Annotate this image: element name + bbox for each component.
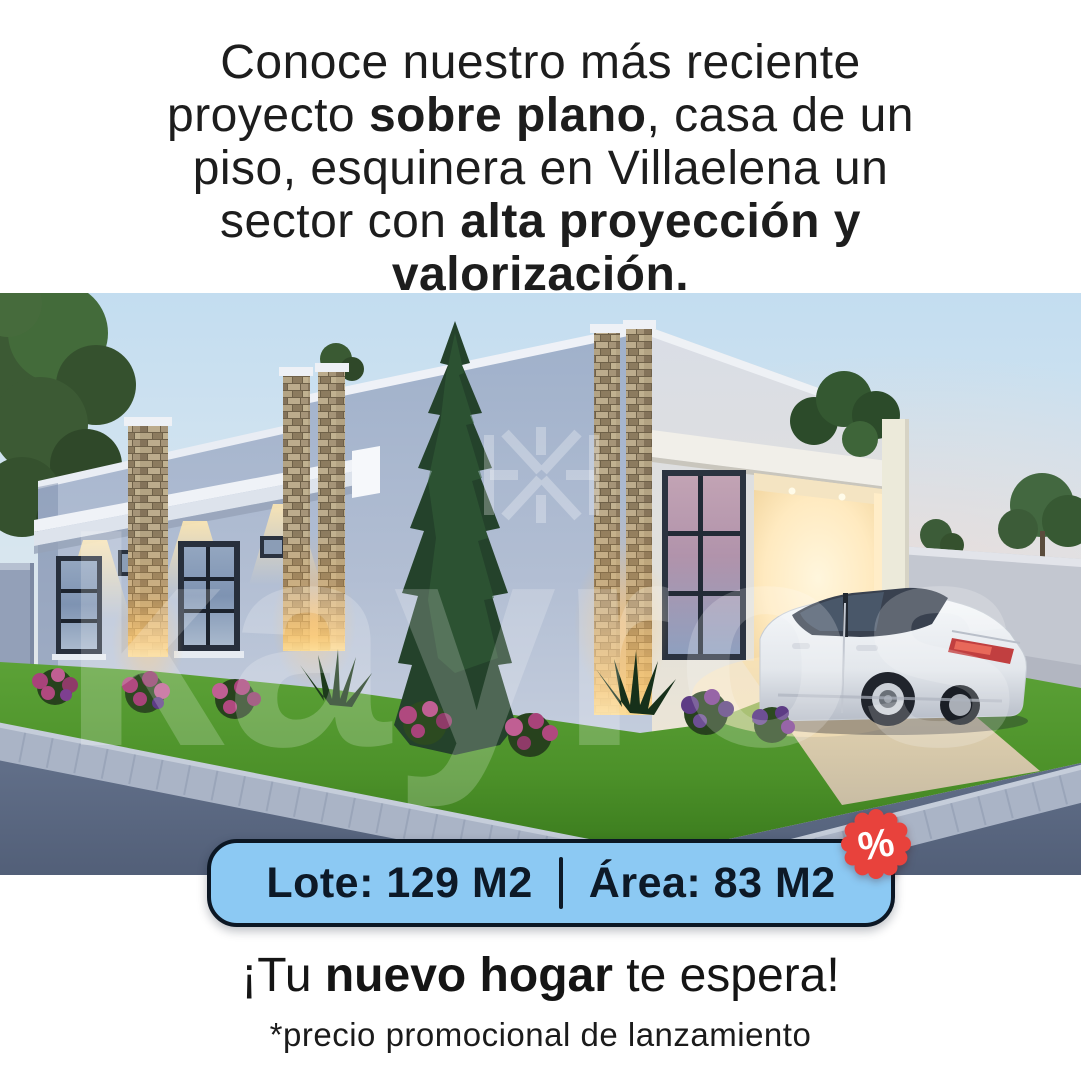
- flyer-root: Conoce nuestro más reciente proyecto sob…: [0, 0, 1081, 1081]
- tagline-text: ¡Tu: [241, 949, 325, 1002]
- disclaimer-text: *precio promocional de lanzamiento: [270, 1016, 812, 1053]
- lote-value: Lote: 129 M2: [266, 859, 532, 908]
- percent-icon: %: [855, 820, 898, 870]
- headline-line-4: sector con alta proyección y: [0, 195, 1081, 248]
- brand-watermark: kayros: [60, 427, 1023, 810]
- spec-badge: Lote: 129 M2 Área: 83 M2: [207, 839, 895, 927]
- headline-bold-text: alta proyección y: [460, 195, 861, 248]
- headline-text: sector con: [220, 195, 460, 248]
- headline-bold-text: sobre plano: [369, 89, 647, 142]
- headline-text: piso, esquinera en Villaelena un: [193, 142, 889, 195]
- discount-percent-badge: %: [836, 804, 916, 884]
- headline-line-1: Conoce nuestro más reciente: [0, 36, 1081, 89]
- badge-divider: [559, 857, 563, 909]
- area-value: Área: 83 M2: [589, 859, 836, 908]
- tagline-bold-text: nuevo hogar: [325, 949, 613, 1002]
- tagline: ¡Tu nuevo hogar te espera!: [0, 948, 1081, 1004]
- brand-watermark-text: kayros: [60, 478, 1023, 810]
- headline-line-3: piso, esquinera en Villaelena un: [0, 142, 1081, 195]
- headline-text: proyecto: [167, 89, 369, 142]
- headline-line-2: proyecto sobre plano, casa de un: [0, 89, 1081, 142]
- headline-text: Conoce nuestro más reciente: [220, 36, 861, 89]
- disclaimer: *precio promocional de lanzamiento: [0, 1016, 1081, 1054]
- headline-text: , casa de un: [646, 89, 914, 142]
- house-render-photo: kayros: [0, 293, 1081, 875]
- headline: Conoce nuestro más reciente proyecto sob…: [0, 36, 1081, 301]
- tagline-text: te espera!: [613, 949, 840, 1002]
